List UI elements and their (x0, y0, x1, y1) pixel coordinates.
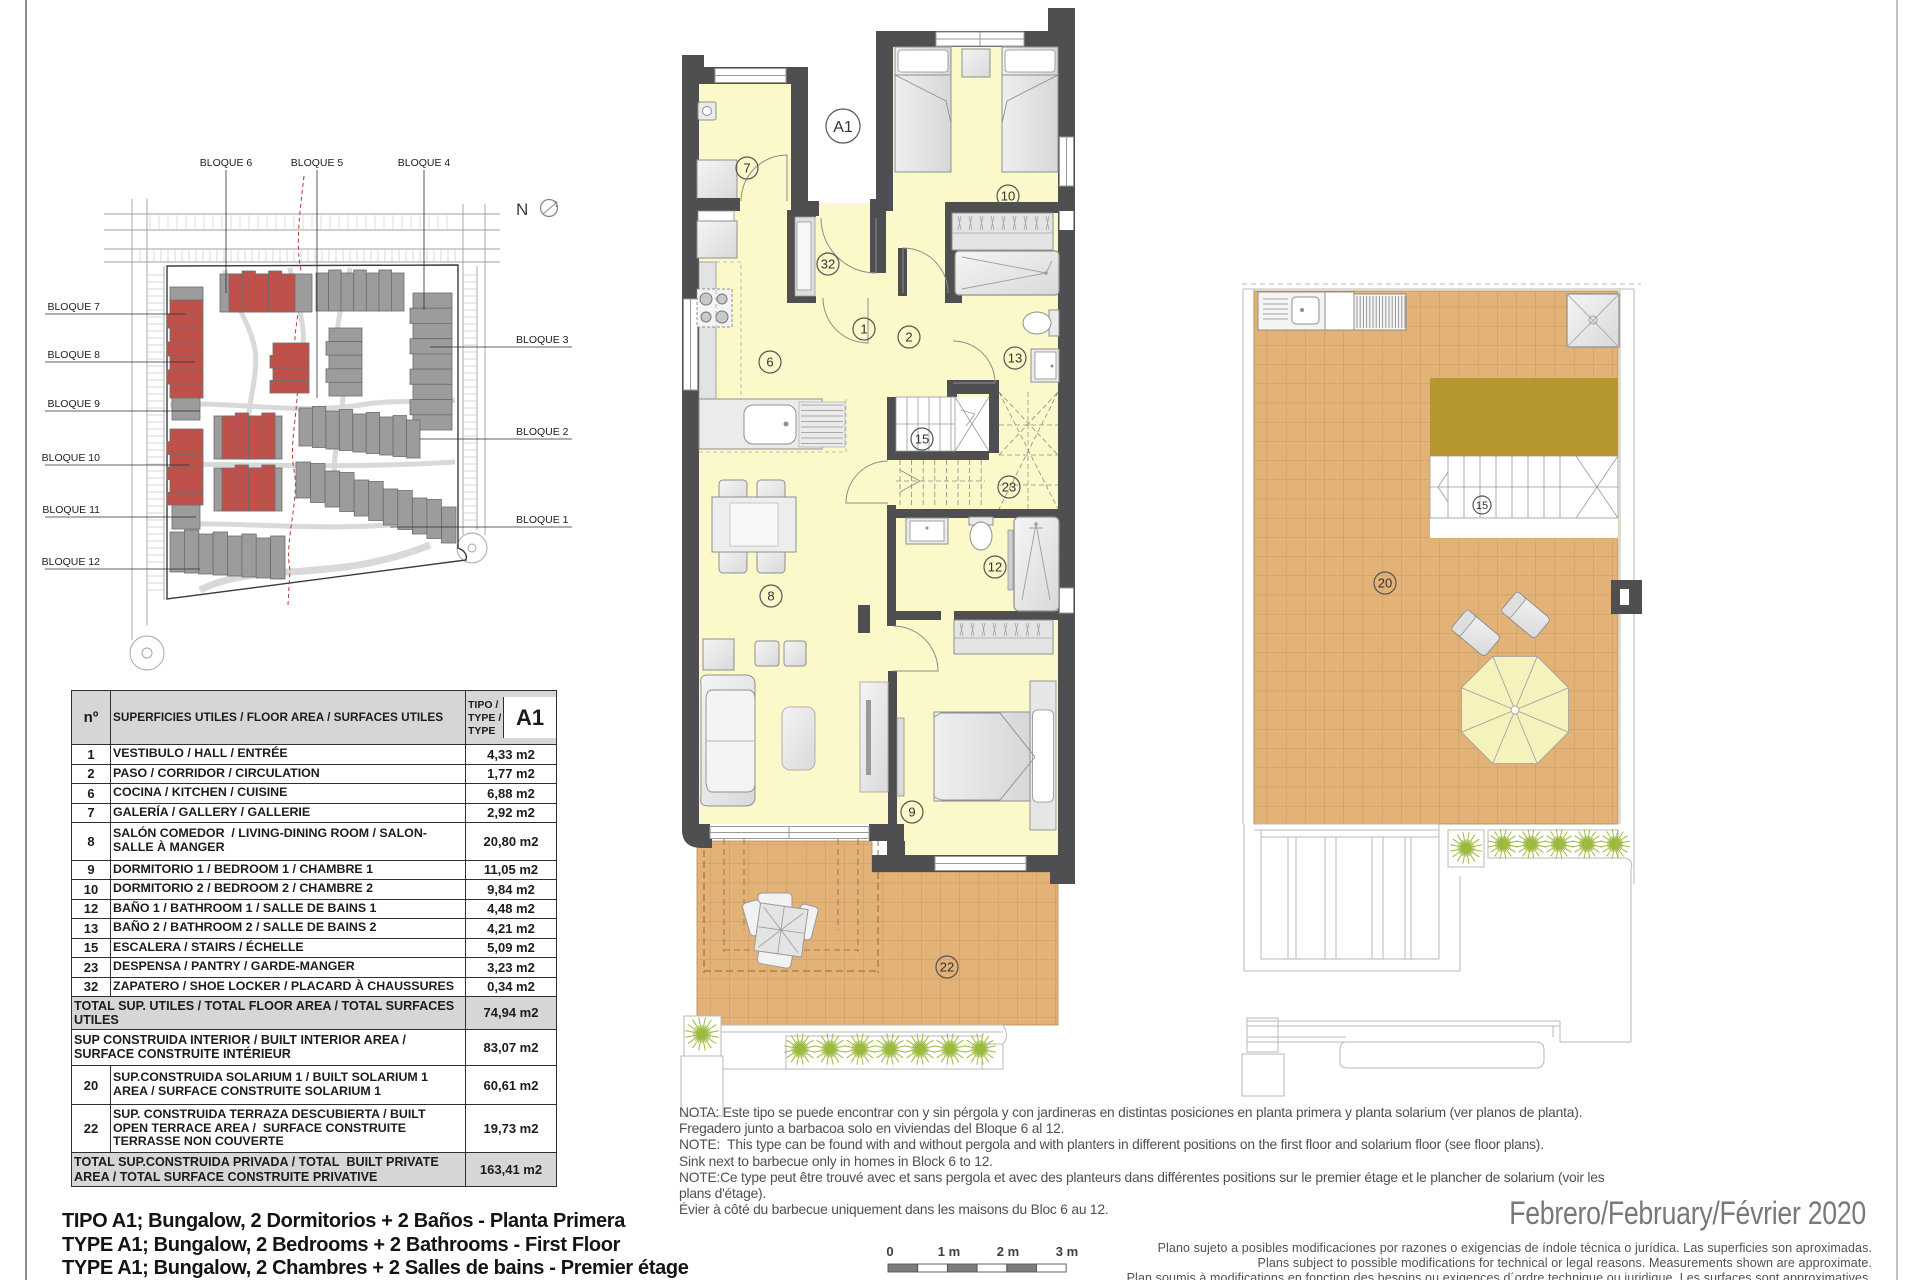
svg-text:BLOQUE 7: BLOQUE 7 (47, 301, 100, 313)
svg-text:BLOQUE 11: BLOQUE 11 (42, 504, 100, 516)
svg-text:8: 8 (767, 589, 774, 604)
svg-text:A1: A1 (833, 119, 853, 136)
svg-text:BLOQUE 12: BLOQUE 12 (42, 556, 101, 568)
svg-text:20: 20 (1378, 576, 1392, 591)
svg-text:BLOQUE 4: BLOQUE 4 (398, 157, 451, 169)
svg-text:BLOQUE 6: BLOQUE 6 (200, 157, 253, 169)
svg-text:13: 13 (1008, 351, 1022, 366)
svg-text:BLOQUE 10: BLOQUE 10 (42, 452, 101, 464)
svg-text:N: N (516, 200, 528, 219)
svg-text:BLOQUE 3: BLOQUE 3 (516, 334, 569, 346)
svg-text:9: 9 (908, 805, 915, 820)
svg-text:7: 7 (743, 161, 750, 176)
svg-text:BLOQUE 8: BLOQUE 8 (47, 349, 100, 361)
svg-text:BLOQUE 5: BLOQUE 5 (291, 157, 344, 169)
svg-text:22: 22 (940, 960, 954, 975)
svg-text:15: 15 (915, 432, 929, 447)
svg-text:6: 6 (766, 355, 773, 370)
svg-text:12: 12 (988, 560, 1002, 575)
svg-text:2: 2 (905, 330, 912, 345)
svg-text:BLOQUE 9: BLOQUE 9 (47, 398, 100, 410)
svg-text:1: 1 (860, 322, 867, 337)
svg-text:32: 32 (821, 257, 835, 272)
svg-text:BLOQUE 2: BLOQUE 2 (516, 426, 569, 438)
svg-text:10: 10 (1001, 189, 1015, 204)
svg-text:15: 15 (1476, 500, 1488, 512)
svg-text:23: 23 (1002, 480, 1016, 495)
svg-text:BLOQUE 1: BLOQUE 1 (516, 514, 569, 526)
